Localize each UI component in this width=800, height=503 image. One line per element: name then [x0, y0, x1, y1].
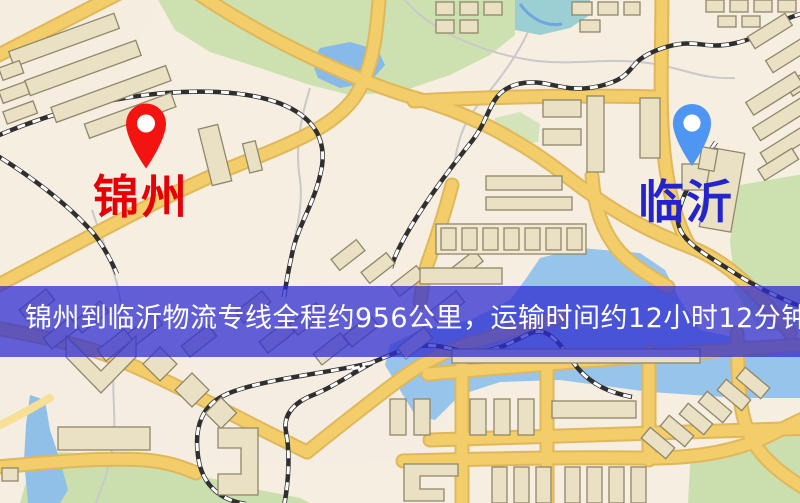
origin-city-label: 锦州	[93, 174, 189, 220]
logistics-route-map: 锦州 临沂 锦州到临沂物流专线全程约956公里，运输时间约12小时12分钟.	[0, 0, 800, 503]
route-info-text: 锦州到临沂物流专线全程约956公里，运输时间约12小时12分钟.	[0, 304, 800, 339]
origin-pin-icon	[120, 102, 172, 169]
map-canvas	[0, 0, 800, 503]
destination-city-label: 临沂	[638, 179, 734, 225]
destination-pin-icon	[667, 103, 717, 166]
route-info-banner: 锦州到临沂物流专线全程约956公里，运输时间约12小时12分钟.	[0, 286, 800, 357]
